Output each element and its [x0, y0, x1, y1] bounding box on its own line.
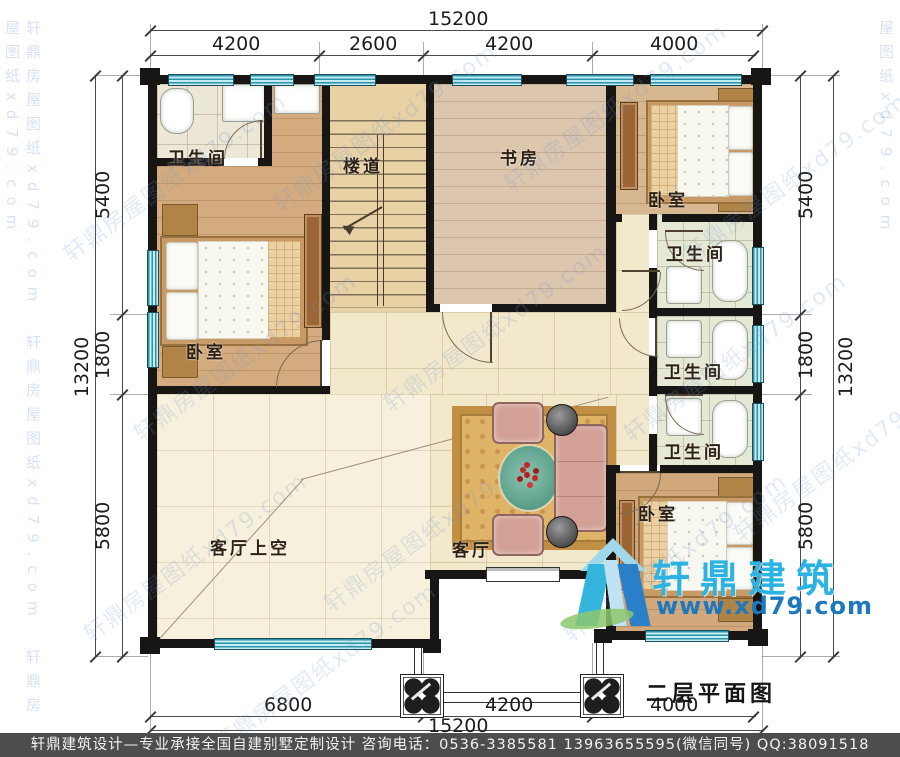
coffee-table [498, 444, 560, 512]
balcony-door [486, 567, 560, 582]
wall-baths-left-stub4 [649, 434, 657, 473]
wall-study-bottom-a [426, 304, 440, 312]
toilet [160, 88, 194, 134]
footer-contact-bar: 轩鼎建筑设计—专业承接全国自建别墅定制设计 咨询电话：0536-3385581 … [0, 733, 900, 757]
door-leaf-study [490, 312, 492, 362]
door-leaf-bath3 [665, 394, 703, 396]
corner-block-bl [140, 637, 160, 654]
dimline-top-segments [150, 55, 756, 56]
dimline-left-segments [122, 75, 123, 656]
bed-left [160, 236, 308, 346]
dim-extension-line [762, 314, 812, 315]
wall-bedroomTR-bottom-b [662, 214, 762, 222]
window-top-study [452, 74, 522, 86]
dim-top-seg1: 4200 [212, 33, 260, 55]
sink [666, 320, 702, 358]
wall-bedroomL-bottom [148, 386, 330, 394]
door-leaf-bath1 [665, 230, 703, 232]
window-top-bathTL [168, 74, 234, 86]
armchair-bottom [492, 514, 544, 556]
watermark-side-text: 轩鼎房屋图纸xd79.com 轩鼎房屋图纸xd79.com 轩鼎房屋图纸xd79… [2, 20, 44, 740]
table-flowers [524, 472, 530, 478]
wall-step-left [430, 570, 439, 648]
wall-bath2-bath3 [649, 386, 762, 394]
watermark-side-text: 轩鼎房屋图纸xd79.com 轩鼎房屋图纸xd79.com 轩鼎房屋图纸xd79… [876, 20, 900, 740]
room-label-bathroom-r3: 卫生间 [664, 438, 724, 463]
wall-bedroomBR-top-b [660, 465, 762, 473]
corner-block-tl [140, 68, 160, 85]
room-label-bathroom-tl: 卫生间 [168, 144, 228, 169]
room-label-bedroom-tr: 卧室 [648, 186, 688, 211]
side-table-top [546, 404, 578, 436]
door-leaf-corridor [622, 270, 660, 272]
room-label-living: 客厅 [452, 536, 492, 561]
dim-bottom-seg1: 6800 [264, 694, 312, 716]
dim-extension-line [319, 42, 320, 75]
sink [222, 84, 266, 122]
dim-bottom-seg2: 4200 [485, 694, 533, 716]
window-top-nook [250, 74, 294, 86]
porch-connector-left [414, 648, 422, 674]
room-label-bedroom-left: 卧室 [186, 338, 226, 363]
room-label-living-void: 客厅上空 [210, 534, 290, 559]
pocket-corridor-floor [616, 394, 649, 465]
dim-extension-line [110, 314, 148, 315]
wall-study-bottom-b [492, 304, 616, 312]
corner-block-tr [751, 68, 771, 85]
room-label-bathroom-r2: 卫生间 [664, 358, 724, 383]
window-right-bath2 [752, 325, 764, 383]
door-leaf-bedroomL [320, 340, 322, 386]
dim-top-seg4: 4000 [650, 33, 698, 55]
door-leaf-bath2 [655, 318, 657, 356]
porch-column-left [400, 674, 444, 718]
dim-tick [747, 711, 759, 723]
logo-house-icon [574, 534, 654, 634]
wall-bedroomBR-top-a [606, 465, 620, 473]
porch-column-right [580, 674, 624, 718]
window-left-1 [147, 250, 159, 306]
dim-extension-line [762, 394, 812, 395]
armchair-top [492, 402, 544, 444]
dim-left-seg2: 1800 [92, 331, 114, 379]
room-label-stairway: 楼道 [343, 152, 383, 177]
dim-extension-line [423, 42, 424, 75]
dim-left-total: 13200 [71, 337, 93, 397]
wardrobe-left-bedroom [304, 214, 322, 328]
dimline-top-total [150, 30, 762, 31]
dim-top-seg2: 2600 [349, 33, 397, 55]
logo-website-url: www.xd79.com [656, 592, 873, 620]
window-top-bedroomTR [650, 74, 742, 86]
window-bottom-void [214, 638, 372, 650]
dim-extension-line [592, 42, 593, 75]
wardrobe-topright-bedroom [620, 102, 638, 190]
window-top-study2 [566, 74, 634, 86]
dim-top-seg3: 4200 [485, 33, 533, 55]
dim-extension-line [110, 394, 148, 395]
window-right-bath3 [752, 403, 764, 461]
dim-right-seg2: 1800 [795, 331, 817, 379]
door-leaf-bathTL [260, 120, 262, 158]
floorplan-canvas: 卫生间 楼道 书房 卧室 卫生间 卫生间 卫生间 卧室 客厅上空 客厅 卧室 1… [0, 0, 900, 757]
dim-right-seg3: 5800 [795, 502, 817, 550]
corner-block-br [748, 629, 768, 646]
vanity-cabinet [274, 84, 320, 114]
dim-right-seg1: 5400 [795, 171, 817, 219]
dim-tick [747, 50, 759, 62]
nightstand [162, 204, 198, 236]
porch-connector-right [596, 640, 604, 674]
study-floor [434, 84, 606, 304]
room-label-bathroom-r1: 卫生间 [666, 240, 726, 265]
wall-bedroomTR-bottom-a [606, 214, 622, 222]
room-label-study: 书房 [500, 144, 540, 169]
wall-baths-left-stub1 [649, 214, 657, 230]
wall-bath1-bath2 [649, 308, 762, 316]
dim-right-total: 13200 [835, 337, 857, 397]
sink [666, 266, 702, 304]
wall-stair-left [322, 75, 330, 340]
corner-block-porch-left [423, 639, 441, 653]
room-label-bedroom-br: 卧室 [638, 500, 678, 525]
wall-stair-right [426, 75, 434, 312]
dim-left-seg3: 5800 [92, 502, 114, 550]
wall-bathTL-right [264, 75, 272, 166]
dim-top-total: 15200 [428, 8, 488, 30]
dim-left-seg1b: 5400 [92, 171, 114, 219]
window-right-bath1 [752, 247, 764, 305]
door-leaf-bedroomBR [620, 471, 660, 473]
drawing-title: 二层平面图 [646, 676, 776, 708]
living-void-floor [157, 394, 430, 639]
window-top-stair [314, 74, 376, 86]
wall-study-right [606, 75, 616, 312]
window-bottom-bedroomBR [645, 630, 729, 642]
window-left-2 [147, 312, 159, 368]
